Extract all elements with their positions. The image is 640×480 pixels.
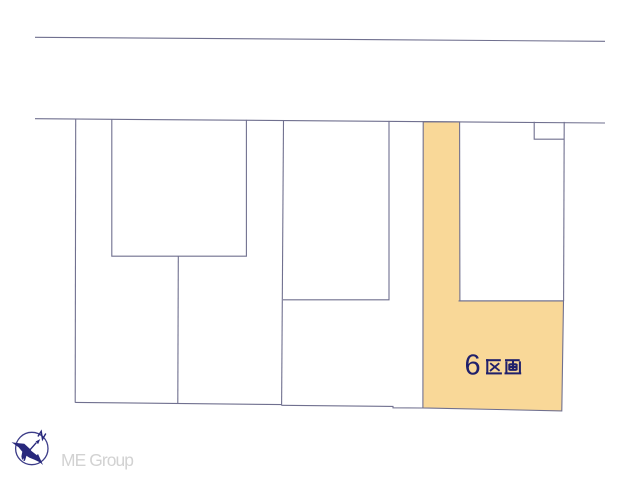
svg-text:6: 6 [465, 349, 481, 381]
svg-text:ME Group: ME Group [61, 450, 133, 470]
